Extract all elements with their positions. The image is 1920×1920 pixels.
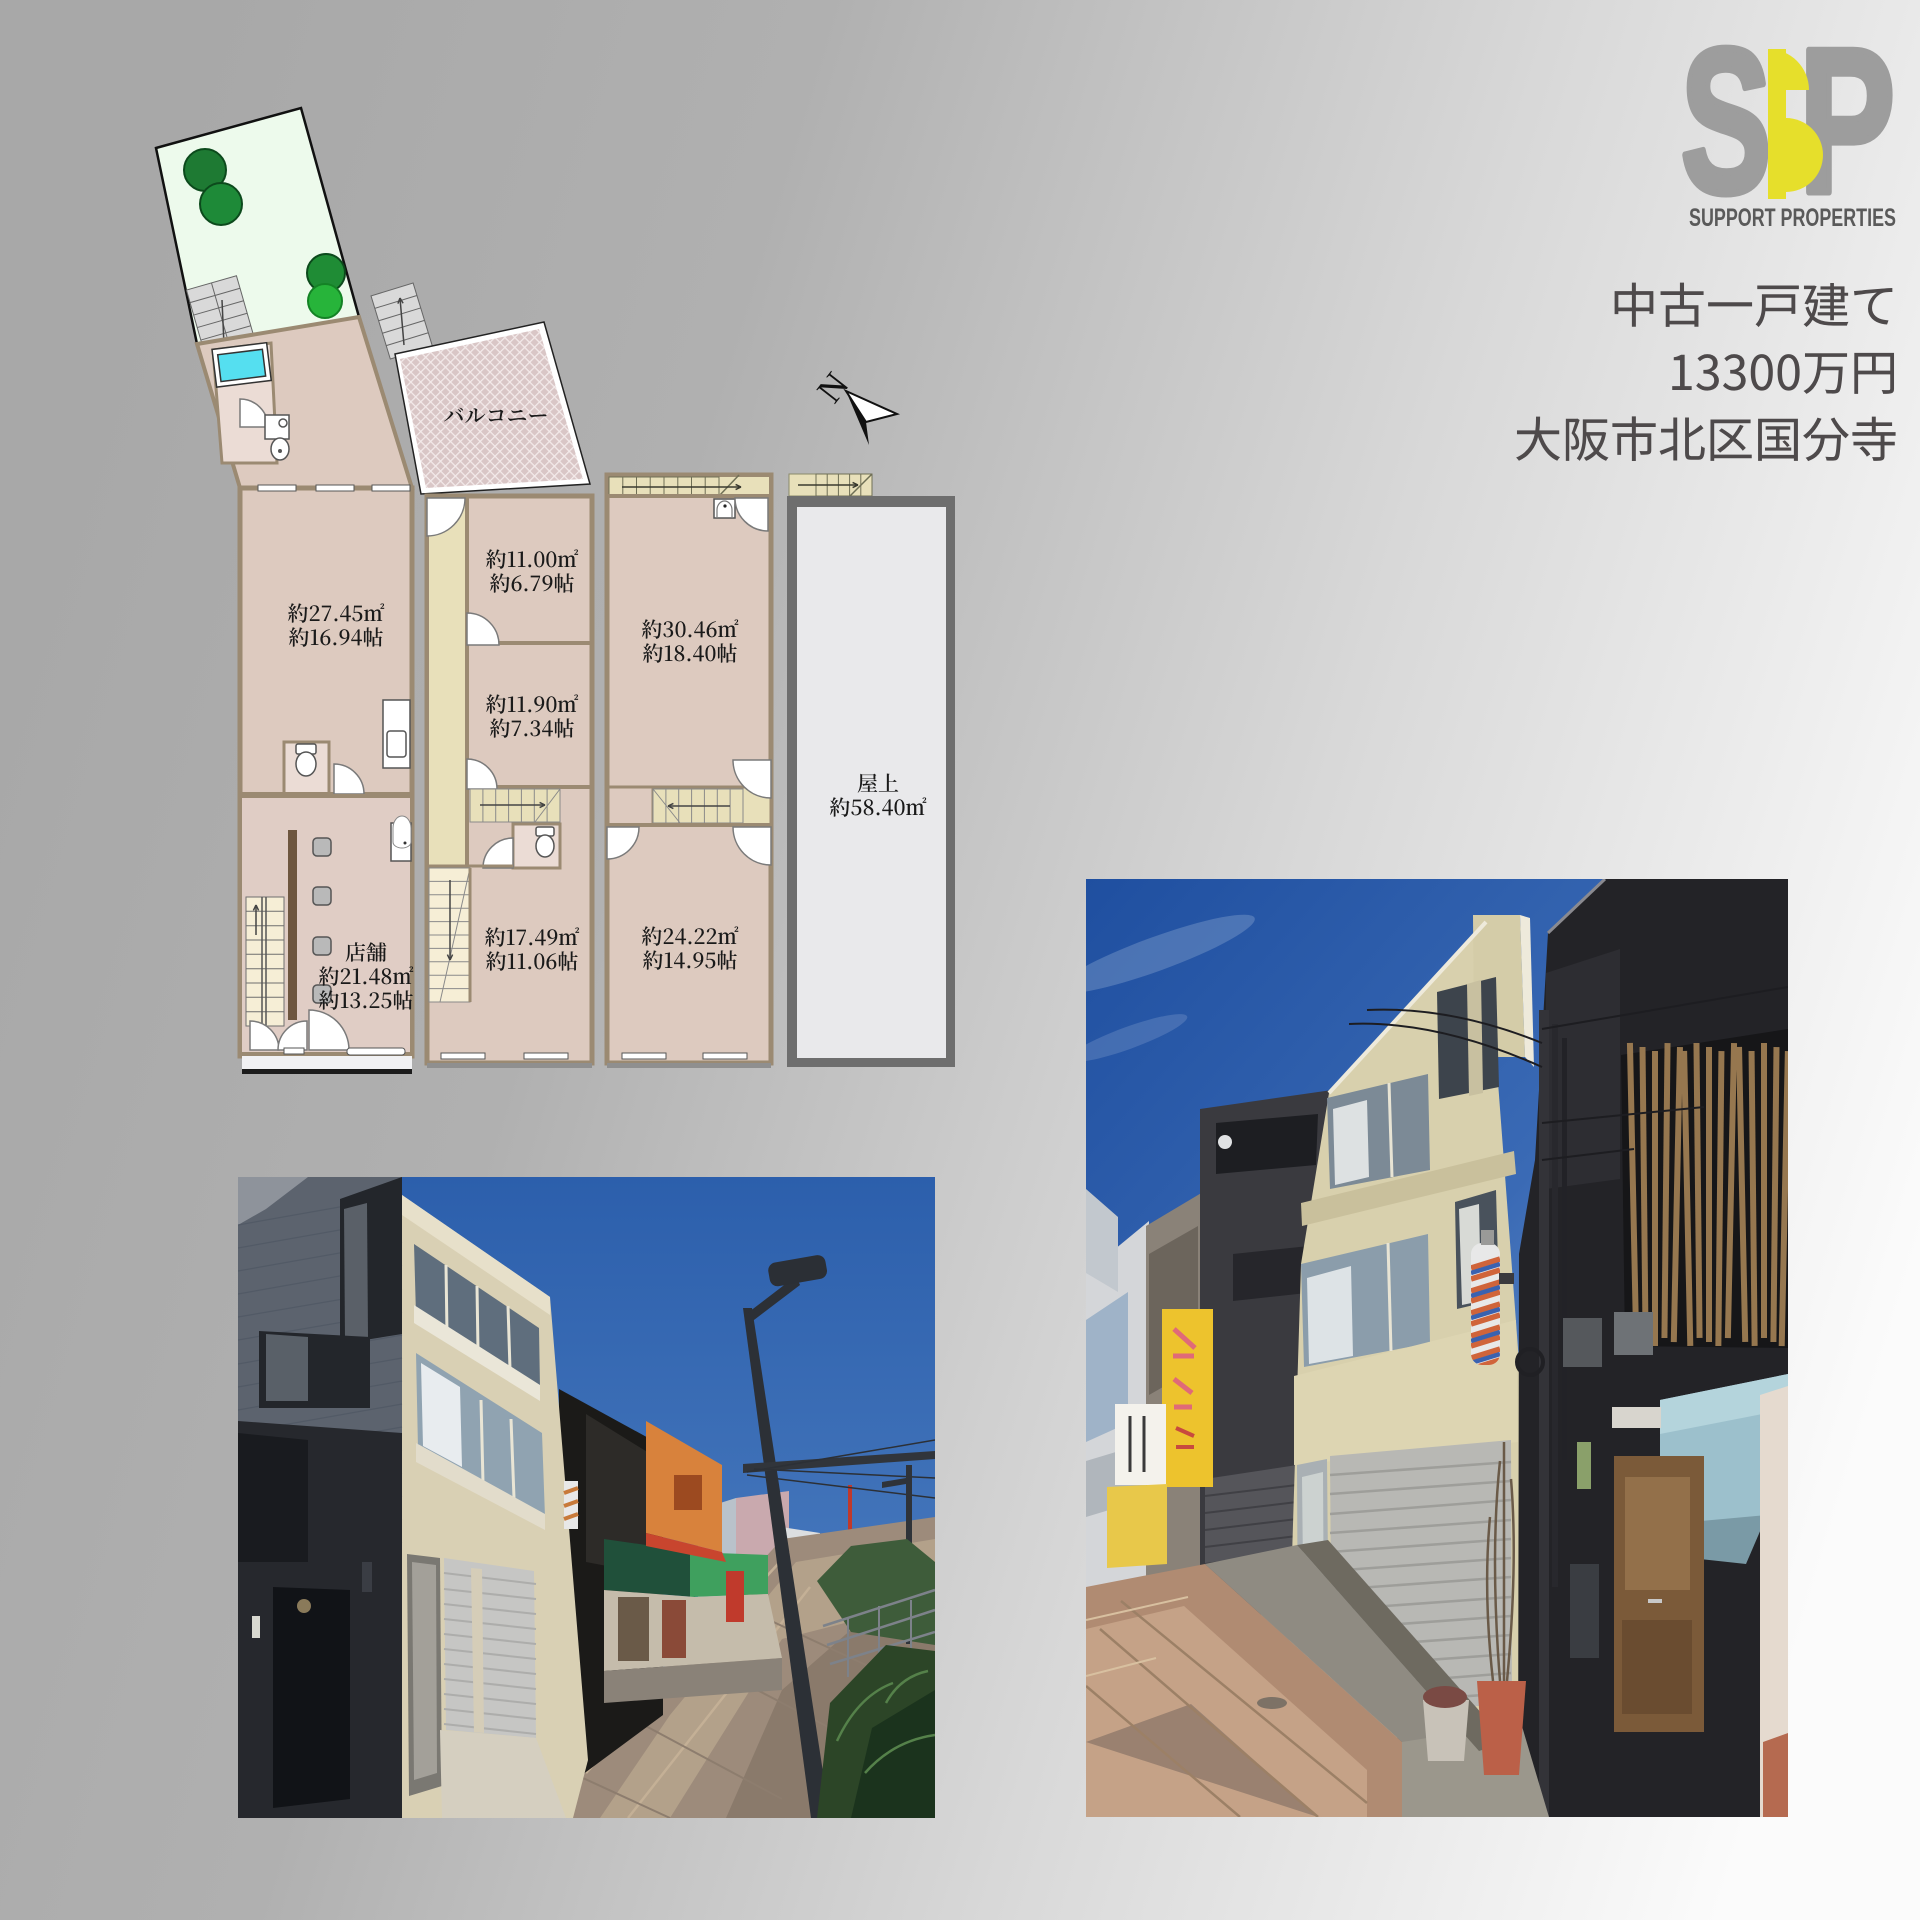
svg-text:P: P: [1799, 5, 1895, 236]
svg-text:SUPPORT PROPERTIES: SUPPORT PROPERTIES: [1689, 204, 1896, 232]
svg-text:S: S: [1681, 6, 1772, 236]
